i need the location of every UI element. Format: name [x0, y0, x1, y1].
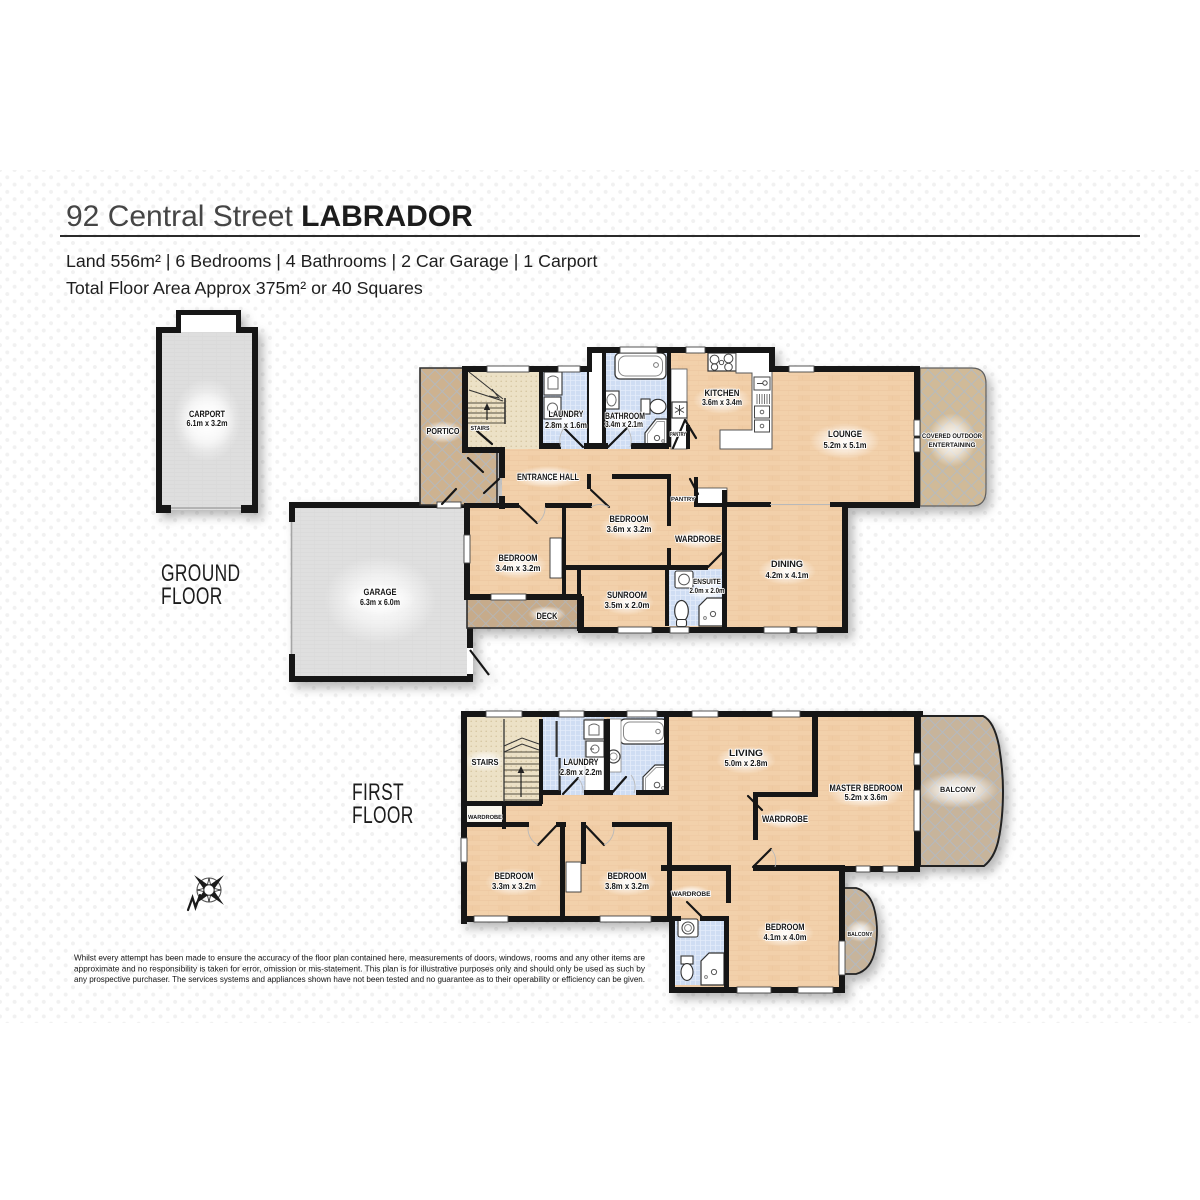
svg-text:WARDROBE: WARDROBE — [762, 814, 808, 824]
svg-text:BEDROOM: BEDROOM — [608, 871, 647, 881]
svg-text:5.0m x 2.8m: 5.0m x 2.8m — [725, 758, 768, 768]
svg-text:WARDROBE: WARDROBE — [672, 891, 712, 898]
svg-text:ENTERTAINING: ENTERTAINING — [929, 442, 976, 449]
svg-text:BEDROOM: BEDROOM — [499, 553, 538, 563]
svg-text:COVERED OUTDOOR: COVERED OUTDOOR — [922, 433, 982, 440]
svg-text:any prospective purchaser. The: any prospective purchaser. The services … — [74, 974, 645, 984]
svg-text:approximate and no responsibil: approximate and no responsibility is tak… — [74, 963, 646, 973]
svg-text:6.3m x 6.0m: 6.3m x 6.0m — [360, 597, 400, 607]
svg-text:3.4m x 2.1m: 3.4m x 2.1m — [605, 419, 643, 429]
svg-text:DINING: DINING — [771, 559, 803, 569]
svg-text:ENTRANCE HALL: ENTRANCE HALL — [517, 472, 579, 482]
svg-text:LOUNGE: LOUNGE — [828, 429, 862, 439]
svg-text:6.1m x 3.2m: 6.1m x 3.2m — [187, 418, 228, 428]
svg-text:BEDROOM: BEDROOM — [495, 871, 534, 881]
svg-text:BALCONY: BALCONY — [940, 785, 976, 794]
svg-text:Whilst every attempt has been: Whilst every attempt has been made to en… — [74, 953, 645, 963]
svg-text:3.3m x 3.2m: 3.3m x 3.2m — [492, 881, 536, 891]
svg-text:GARAGE: GARAGE — [364, 587, 397, 597]
svg-text:3.5m x 2.0m: 3.5m x 2.0m — [605, 600, 650, 610]
svg-text:WARDROBE: WARDROBE — [675, 534, 721, 544]
svg-text:2.8m x 1.6m: 2.8m x 1.6m — [545, 420, 587, 430]
svg-text:2.8m x 2.2m: 2.8m x 2.2m — [560, 767, 602, 777]
svg-text:STAIRS: STAIRS — [471, 425, 490, 432]
svg-text:3.6m x 3.2m: 3.6m x 3.2m — [607, 524, 652, 534]
svg-text:DECK: DECK — [537, 611, 558, 621]
svg-text:BALCONY: BALCONY — [848, 931, 873, 938]
svg-text:SUNROOM: SUNROOM — [607, 590, 647, 600]
svg-text:LAUNDRY: LAUNDRY — [564, 757, 599, 767]
svg-text:WARDROBE: WARDROBE — [468, 814, 502, 821]
svg-text:2.0m x 2.0m: 2.0m x 2.0m — [690, 586, 725, 595]
svg-text:4.2m x 4.1m: 4.2m x 4.1m — [766, 570, 809, 580]
svg-text:BEDROOM: BEDROOM — [610, 514, 649, 524]
svg-text:LIVING: LIVING — [729, 748, 763, 758]
svg-text:5.2m x 3.6m: 5.2m x 3.6m — [845, 792, 888, 802]
svg-text:3.4m x 3.2m: 3.4m x 3.2m — [496, 563, 541, 573]
svg-text:PANTRY: PANTRY — [671, 496, 695, 503]
svg-text:STAIRS: STAIRS — [472, 757, 499, 767]
svg-text:LAUNDRY: LAUNDRY — [549, 409, 584, 419]
svg-text:PORTICO: PORTICO — [427, 426, 460, 436]
svg-text:3.8m x 3.2m: 3.8m x 3.2m — [605, 881, 649, 891]
svg-text:ENSUITE: ENSUITE — [693, 577, 721, 586]
svg-text:4.1m x 4.0m: 4.1m x 4.0m — [764, 932, 807, 942]
svg-text:3.6m x 3.4m: 3.6m x 3.4m — [702, 397, 742, 407]
svg-text:PANTRY: PANTRY — [670, 431, 686, 438]
svg-text:5.2m x 5.1m: 5.2m x 5.1m — [824, 440, 867, 450]
svg-text:BEDROOM: BEDROOM — [766, 922, 805, 932]
